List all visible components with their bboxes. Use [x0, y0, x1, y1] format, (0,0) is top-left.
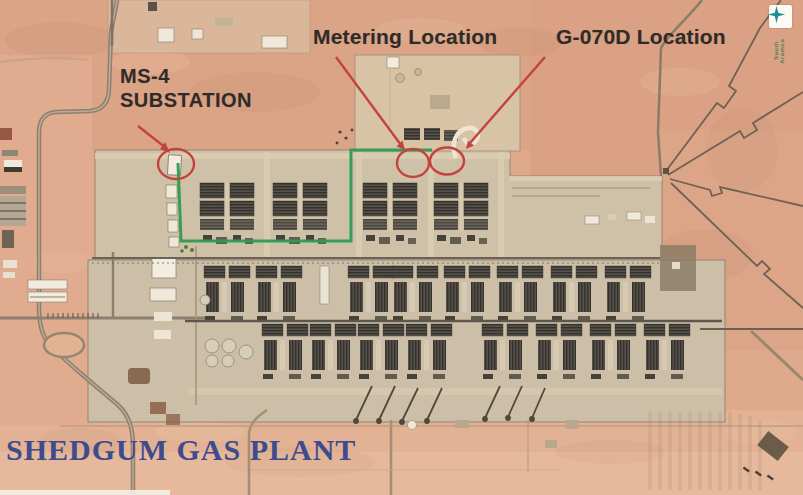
annotated-satellite-image: Metering Location G-070D Location MS-4 S… — [0, 0, 803, 495]
saudi-aramco-logo: Saudi Aramco — [767, 5, 793, 71]
ms4-label-line2: SUBSTATION — [120, 88, 252, 112]
g070d-location-label: G-070D Location — [556, 25, 726, 49]
ms4-substation-label: MS-4 SUBSTATION — [120, 64, 252, 112]
metering-location-label: Metering Location — [313, 25, 497, 49]
ms4-label-line1: MS-4 — [120, 64, 252, 88]
aramco-logo-text: Saudi Aramco — [773, 31, 787, 71]
aramco-star-icon — [769, 5, 792, 28]
scan-artifact — [0, 490, 170, 495]
plant-title: SHEDGUM GAS PLANT — [6, 433, 356, 467]
